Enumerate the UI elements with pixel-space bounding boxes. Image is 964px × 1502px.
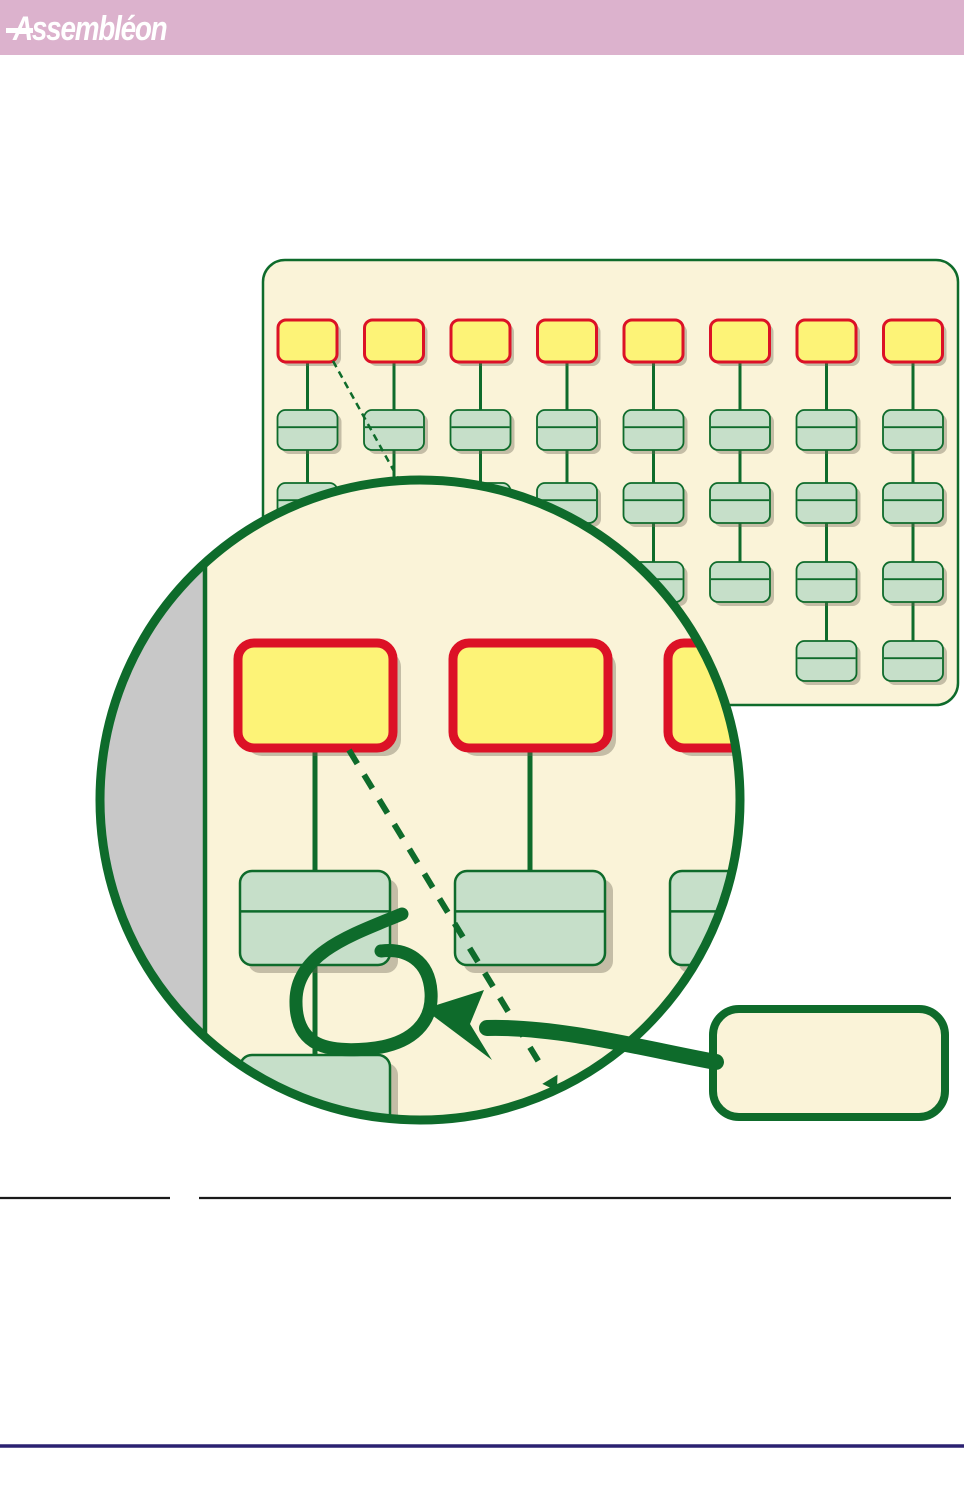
magnified-yellow-box: [238, 643, 393, 748]
green-step-box: [797, 410, 857, 450]
green-step-box: [797, 483, 857, 523]
green-step-box: [883, 410, 943, 450]
green-step-box: [451, 410, 511, 450]
yellow-head-box: [278, 320, 337, 362]
green-step-box: [797, 641, 857, 681]
yellow-head-box: [711, 320, 770, 362]
callout-box: [713, 1009, 945, 1117]
yellow-head-box: [365, 320, 424, 362]
green-step-box: [624, 410, 684, 450]
yellow-head-box: [451, 320, 510, 362]
green-step-box: [883, 562, 943, 602]
magnified-green-box: [670, 871, 820, 965]
green-step-box: [624, 483, 684, 523]
figure-svg: [0, 0, 964, 1502]
green-step-box: [537, 410, 597, 450]
yellow-head-box: [797, 320, 856, 362]
manual-page: Assembléon: [0, 0, 964, 1502]
yellow-head-box: [624, 320, 683, 362]
green-step-box: [883, 483, 943, 523]
green-step-box: [883, 641, 943, 681]
green-step-box: [797, 562, 857, 602]
green-step-box: [710, 410, 770, 450]
green-step-box: [710, 483, 770, 523]
magnified-green-box-bottom: [240, 1055, 390, 1135]
green-step-box: [364, 410, 424, 450]
magnified-green-box: [455, 871, 605, 965]
green-step-box: [710, 562, 770, 602]
yellow-head-box: [884, 320, 943, 362]
magnified-yellow-box: [453, 643, 608, 748]
yellow-head-box: [538, 320, 597, 362]
green-step-box: [278, 410, 338, 450]
